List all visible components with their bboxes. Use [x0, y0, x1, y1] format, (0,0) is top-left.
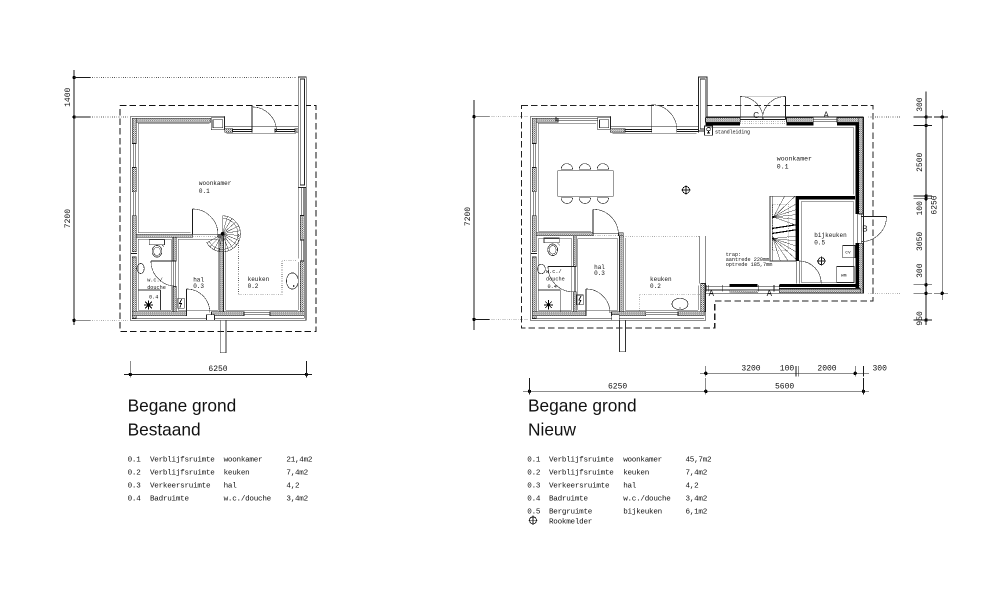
svg-text:6,1m2: 6,1m2	[686, 509, 708, 517]
svg-text:0.5: 0.5	[814, 239, 825, 246]
svg-text:Begane grond: Begane grond	[128, 396, 237, 416]
svg-text:Verblijfsruimte: Verblijfsruimte	[150, 456, 215, 464]
svg-text:6250: 6250	[208, 365, 227, 374]
svg-text:Bestaand: Bestaand	[128, 420, 201, 440]
svg-text:4,2: 4,2	[286, 483, 300, 491]
svg-text:A: A	[709, 289, 715, 298]
svg-text:w.c./: w.c./	[147, 277, 163, 283]
svg-text:0.5: 0.5	[527, 509, 541, 517]
svg-text:45,7m2: 45,7m2	[686, 456, 713, 464]
svg-text:0.4: 0.4	[527, 496, 541, 504]
svg-text:Rookmelder: Rookmelder	[549, 518, 592, 526]
svg-text:0.1: 0.1	[527, 456, 541, 464]
svg-text:hal: hal	[623, 483, 637, 491]
svg-text:douche: douche	[546, 276, 565, 282]
svg-text:7,4m2: 7,4m2	[686, 469, 708, 477]
svg-text:woonkamer: woonkamer	[777, 156, 812, 163]
svg-text:1400: 1400	[64, 87, 73, 106]
svg-text:keuken: keuken	[248, 276, 270, 283]
svg-text:Badruimte: Badruimte	[549, 496, 588, 504]
svg-text:2500: 2500	[916, 152, 925, 171]
svg-text:4,2: 4,2	[686, 483, 700, 491]
svg-text:Verblijfsruimte: Verblijfsruimte	[150, 469, 215, 477]
svg-text:w.c./douche: w.c./douche	[224, 496, 272, 504]
svg-text:0.3: 0.3	[527, 483, 541, 491]
svg-text:w.c./douche: w.c./douche	[623, 496, 671, 504]
svg-text:3050: 3050	[916, 232, 925, 251]
svg-text:woonkamer: woonkamer	[623, 456, 662, 464]
svg-text:0.3: 0.3	[193, 283, 204, 290]
svg-text:w.c./: w.c./	[546, 269, 562, 275]
svg-text:keuken: keuken	[623, 469, 649, 477]
svg-text:woonkamer: woonkamer	[199, 180, 232, 187]
svg-text:0.1: 0.1	[199, 188, 210, 195]
svg-text:A: A	[767, 289, 773, 298]
svg-text:A: A	[824, 111, 830, 120]
svg-text:wm: wm	[841, 273, 847, 278]
svg-text:7200: 7200	[464, 207, 473, 226]
svg-text:cv: cv	[845, 251, 851, 256]
svg-text:21,4m2: 21,4m2	[286, 456, 313, 464]
svg-text:100: 100	[916, 201, 925, 216]
svg-text:100: 100	[780, 365, 795, 374]
svg-text:Badruimte: Badruimte	[150, 496, 189, 504]
svg-text:6250: 6250	[930, 195, 939, 214]
svg-text:0.1: 0.1	[777, 164, 789, 171]
svg-text:keuken: keuken	[224, 469, 250, 477]
svg-text:0.3: 0.3	[128, 483, 142, 491]
svg-text:bijkeuken: bijkeuken	[814, 232, 847, 239]
svg-text:0.2: 0.2	[527, 469, 541, 477]
svg-text:950: 950	[916, 311, 925, 326]
svg-text:woonkamer: woonkamer	[224, 456, 263, 464]
svg-text:0.3: 0.3	[594, 270, 605, 277]
svg-text:Bergruimte: Bergruimte	[549, 509, 593, 517]
svg-text:300: 300	[916, 97, 925, 112]
svg-text:3,4m2: 3,4m2	[286, 496, 308, 504]
svg-text:3200: 3200	[741, 365, 760, 374]
svg-text:Verkeersruimte: Verkeersruimte	[549, 483, 610, 491]
svg-text:Verblijfsruimte: Verblijfsruimte	[549, 469, 614, 477]
svg-text:0.1: 0.1	[128, 456, 142, 464]
svg-text:optrede 185,7mm: optrede 185,7mm	[726, 262, 773, 268]
svg-text:0.4: 0.4	[128, 496, 142, 504]
svg-text:Nieuw: Nieuw	[528, 420, 577, 440]
svg-text:3,4m2: 3,4m2	[686, 496, 708, 504]
svg-text:B: B	[862, 224, 867, 233]
svg-text:Verblijfsruimte: Verblijfsruimte	[549, 456, 614, 464]
svg-text:hal: hal	[224, 483, 238, 491]
svg-text:douche: douche	[147, 285, 166, 291]
svg-text:Begane grond: Begane grond	[528, 396, 637, 416]
svg-text:300: 300	[872, 365, 887, 374]
svg-text:0.2: 0.2	[650, 283, 661, 290]
svg-text:0.2: 0.2	[128, 469, 142, 477]
svg-text:7,4m2: 7,4m2	[286, 469, 308, 477]
svg-text:0.4: 0.4	[548, 284, 557, 290]
svg-text:2000: 2000	[817, 365, 836, 374]
svg-text:5600: 5600	[775, 382, 794, 391]
svg-text:0.2: 0.2	[248, 283, 259, 290]
svg-text:C: C	[753, 111, 759, 120]
svg-text:Verkeersruimte: Verkeersruimte	[150, 483, 211, 491]
svg-text:standleiding: standleiding	[715, 130, 750, 136]
svg-text:0.4: 0.4	[149, 295, 158, 301]
svg-text:6250: 6250	[608, 382, 627, 391]
svg-text:300: 300	[916, 263, 925, 278]
svg-text:bijkeuken: bijkeuken	[623, 509, 662, 517]
svg-text:keuken: keuken	[650, 276, 672, 283]
svg-text:7200: 7200	[64, 209, 73, 228]
